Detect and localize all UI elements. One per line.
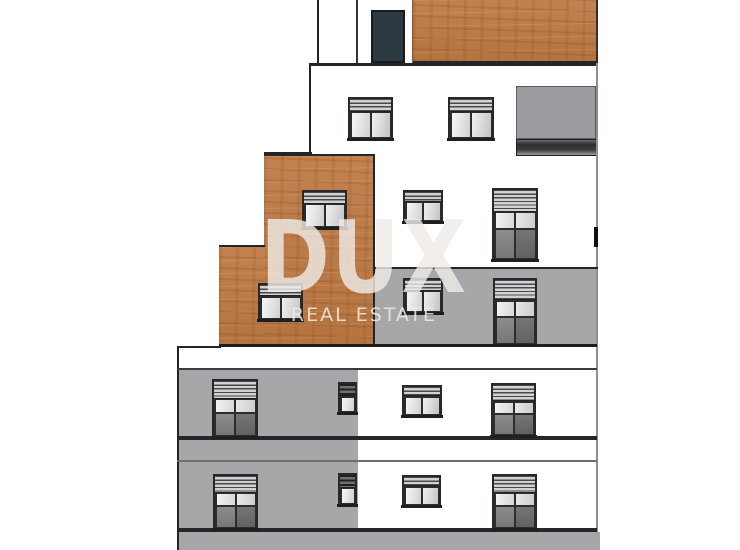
window-panes	[340, 396, 355, 412]
roof-divider	[356, 0, 358, 64]
door-panel	[516, 318, 534, 343]
loggia-recess	[516, 86, 596, 139]
roller-shutter-box	[405, 280, 441, 291]
glass-pane	[342, 489, 354, 502]
window-panes	[350, 112, 391, 138]
balcony-door-window	[212, 379, 258, 438]
upper-left-edge	[309, 63, 311, 155]
building-elevation-rendering: DUX REAL ESTATE	[0, 0, 740, 550]
roller-shutter-box	[404, 477, 439, 486]
window-panes	[493, 401, 534, 435]
door-panel	[496, 230, 515, 257]
roller-shutter-box	[304, 192, 345, 204]
roller-shutter-box	[404, 387, 440, 396]
door-leaf	[495, 403, 513, 434]
glass-pane	[282, 298, 300, 318]
window	[402, 385, 442, 417]
roller-shutter-box	[214, 381, 256, 399]
balcony-door-window	[213, 474, 258, 530]
window-panes	[304, 204, 345, 228]
glass-pane	[424, 203, 440, 219]
glass-pane	[515, 403, 533, 414]
window-panes	[494, 493, 535, 528]
door-leaf	[236, 400, 255, 435]
lower-left-edge	[177, 346, 179, 550]
balcony-door-window	[492, 188, 538, 261]
window-panes	[405, 291, 441, 312]
window	[402, 475, 441, 507]
roller-shutter-box	[215, 476, 256, 493]
glass-pane	[372, 113, 390, 136]
door-leaf	[216, 400, 235, 435]
door-leaf	[496, 213, 515, 257]
door-panel	[216, 414, 235, 435]
window	[302, 190, 347, 229]
door-panel	[515, 415, 533, 433]
door-leaf	[516, 494, 534, 526]
glass-pane	[406, 488, 421, 504]
step-line	[177, 346, 221, 348]
window-panes	[494, 212, 536, 259]
roller-shutter-box	[494, 190, 536, 212]
glass-pane	[452, 113, 471, 136]
door-panel	[495, 415, 513, 433]
window-panes	[404, 486, 439, 505]
roller-shutter-box	[340, 384, 355, 396]
window-panes	[450, 112, 492, 138]
glass-pane	[217, 494, 235, 505]
glass-pane	[237, 494, 255, 505]
door-leaf	[516, 302, 534, 343]
glass-pane	[326, 205, 344, 226]
glass-pane	[407, 292, 423, 310]
glass-pane	[495, 403, 513, 414]
door-panel	[237, 507, 255, 526]
glass-pane	[423, 488, 438, 504]
roller-shutter-box	[450, 99, 492, 112]
building-facade	[0, 0, 740, 550]
narrow-window	[338, 382, 357, 414]
floor-line-2	[177, 368, 597, 370]
window	[348, 97, 393, 140]
door-panel	[217, 507, 235, 526]
roller-shutter-box	[494, 476, 535, 493]
door-panel	[516, 507, 534, 526]
glass-pane	[262, 298, 280, 318]
glass-pane	[342, 398, 354, 411]
glass-pane	[406, 398, 422, 414]
window-panes	[214, 399, 256, 437]
glass-pane	[216, 400, 235, 412]
door-leaf	[497, 302, 515, 343]
roller-shutter-box	[495, 280, 535, 300]
roller-shutter-box	[350, 99, 391, 112]
glass-pane	[516, 213, 535, 228]
balcony-door-window	[492, 474, 537, 530]
roller-shutter-box	[260, 285, 301, 296]
window-panes	[405, 202, 441, 221]
glass-pane	[424, 292, 440, 310]
glass-pane	[516, 494, 534, 505]
door-leaf	[515, 403, 533, 434]
door-leaf	[496, 494, 514, 526]
glass-pane	[472, 113, 491, 136]
glass-pane	[497, 302, 515, 316]
window	[403, 190, 443, 223]
right-edge	[596, 63, 598, 533]
window-panes	[260, 296, 301, 319]
glass-pane	[496, 213, 515, 228]
door-panel	[516, 230, 535, 257]
glass-pane	[407, 203, 423, 219]
slab-line-1	[219, 344, 597, 347]
balcony-door-window	[493, 278, 537, 346]
rooftop-door	[371, 10, 405, 63]
window-panes	[340, 488, 355, 504]
window	[258, 283, 303, 321]
window-panes	[215, 493, 256, 528]
roller-shutter-box	[340, 475, 355, 488]
door-leaf	[217, 494, 235, 526]
roof-left-edge	[317, 0, 319, 64]
window	[448, 97, 494, 140]
door-panel	[236, 414, 255, 435]
door-leaf	[516, 213, 535, 257]
glass-pane	[496, 494, 514, 505]
roller-shutter-box	[405, 192, 441, 202]
window-panes	[495, 300, 535, 344]
window	[403, 278, 443, 314]
glass-pane	[236, 400, 255, 412]
balcony-door-window	[491, 383, 536, 437]
right-edge-mark	[594, 227, 598, 247]
glass-pane	[352, 113, 370, 136]
glass-pane	[306, 205, 324, 226]
door-panel	[496, 507, 514, 526]
roller-shutter-box	[493, 385, 534, 401]
floor-line-top	[309, 63, 598, 66]
gray-top-line	[375, 267, 598, 269]
loggia-shadow-band	[516, 139, 598, 156]
ledge-line	[264, 152, 312, 154]
door-panel	[497, 318, 515, 343]
glass-pane	[423, 398, 439, 414]
facade-wood-top	[412, 0, 598, 64]
window-panes	[404, 396, 440, 415]
glass-pane	[516, 302, 534, 316]
narrow-window	[338, 473, 357, 506]
door-leaf	[237, 494, 255, 526]
slab-thin-line	[177, 460, 597, 462]
